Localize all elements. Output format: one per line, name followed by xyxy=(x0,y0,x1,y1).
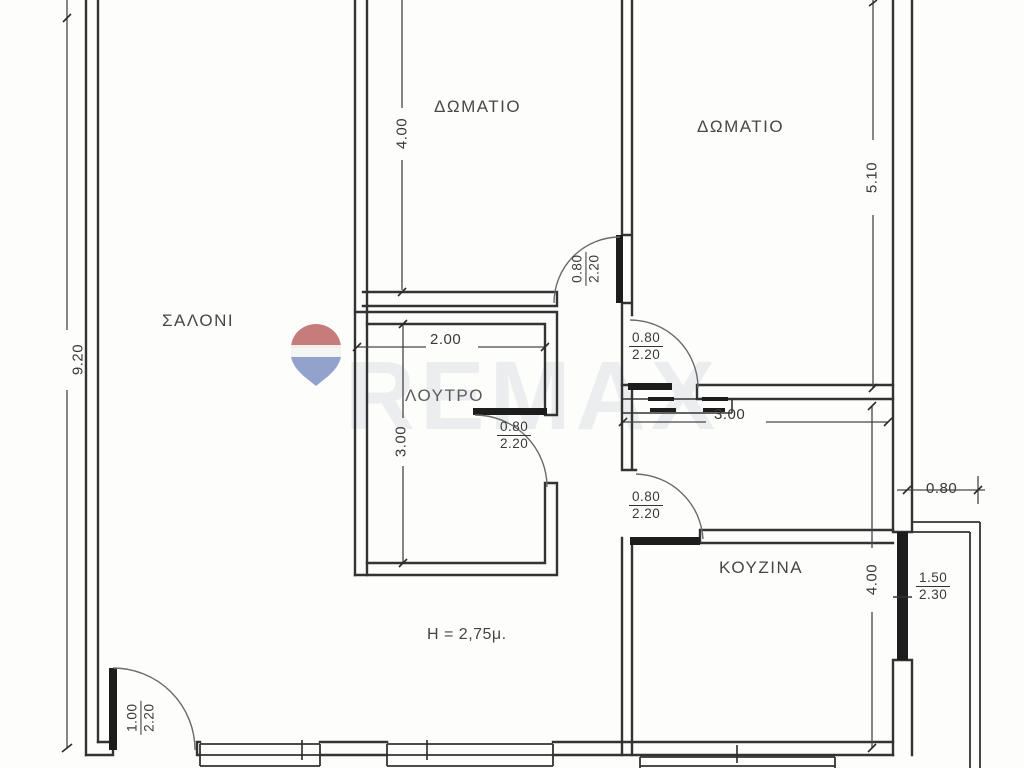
remax-balloon-icon xyxy=(0,0,1024,768)
floor-plan-page: REMAX xyxy=(0,0,1024,768)
